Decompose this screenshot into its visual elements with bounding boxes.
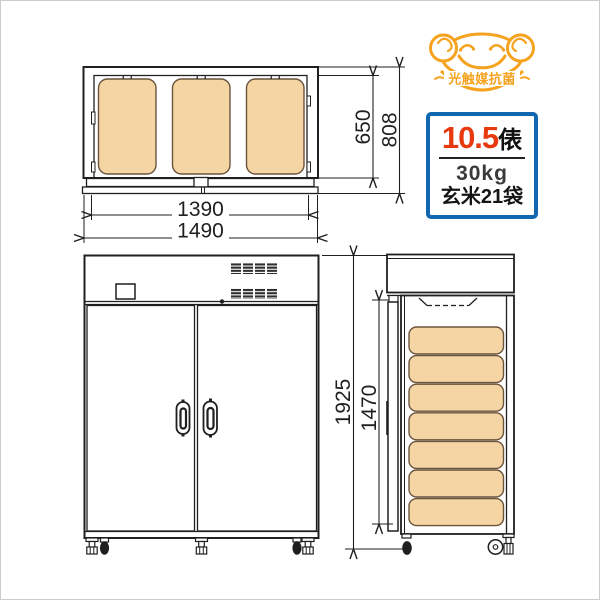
leveling-foot (196, 538, 208, 554)
rice-bag (409, 356, 504, 383)
rice-bag (409, 499, 504, 526)
depth-dimensions: 650 808 (318, 67, 405, 194)
hinge-notch (92, 162, 96, 172)
rice-bag-stack-side-view (409, 327, 504, 526)
hinge-notch (92, 112, 96, 124)
leveling-foot (302, 538, 314, 554)
door-handle-right (204, 399, 218, 438)
band-tilde (435, 77, 443, 79)
hinge-notch (307, 162, 311, 172)
dim-label-outer-depth: 808 (379, 112, 402, 147)
caster (100, 538, 109, 555)
leveling-foot (503, 534, 514, 554)
eye-dot (489, 47, 492, 50)
hinge-notch (307, 96, 311, 106)
capacity-badge: 10.5 俵 30kg 玄米21袋 (426, 112, 538, 219)
door-handle-left (177, 400, 190, 437)
door-lock (220, 299, 224, 303)
badge-divider (439, 157, 524, 159)
capacity-line: 10.5 俵 (442, 122, 522, 153)
dim-label-inner-depth: 650 (352, 109, 375, 144)
rice-bag (409, 327, 504, 354)
rice-bag (247, 79, 305, 174)
eye-dot (502, 48, 505, 51)
capacity-unit: 俵 (498, 129, 522, 153)
control-panel (116, 284, 135, 299)
rice-bag (99, 79, 157, 174)
door-handle-side (386, 401, 388, 435)
door-front-edge-plan (83, 187, 319, 194)
side-view (386, 255, 514, 555)
eye-dot (472, 47, 475, 50)
bag-weight: 30kg (456, 162, 508, 185)
eye-dot (459, 48, 462, 51)
rice-bag (409, 441, 504, 468)
caster (402, 534, 412, 555)
caster (292, 538, 301, 555)
bag-count: 玄米21袋 (441, 185, 523, 209)
dim-label-inner-width: 1390 (177, 198, 224, 221)
mascot-label: 光触媒抗菌 (447, 72, 516, 87)
machine-compartment-side (387, 255, 514, 293)
dim-label-outer-width: 1490 (177, 220, 224, 243)
antibacterial-mascot-logo: 光触媒抗菌 (427, 29, 537, 105)
front-view (85, 256, 319, 555)
rice-bag (409, 470, 504, 497)
capacity-value: 10.5 (442, 122, 498, 153)
top-view (83, 67, 319, 194)
center-door-stop (194, 178, 208, 188)
dim-label-total-height: 1925 (332, 379, 355, 426)
door-side-profile (388, 302, 398, 531)
rice-bag (173, 79, 231, 174)
dim-label-inner-height: 1470 (358, 385, 381, 432)
band-tilde (521, 77, 529, 79)
product-spec-diagram: 1390 1490 650 808 (0, 0, 600, 600)
leveling-foot (86, 538, 98, 554)
rice-bag-row-top-view (99, 76, 305, 175)
rice-bag (409, 384, 504, 411)
width-dimensions: 1390 1490 (84, 195, 318, 243)
swivel-caster (488, 540, 502, 554)
rice-bag (409, 413, 504, 440)
